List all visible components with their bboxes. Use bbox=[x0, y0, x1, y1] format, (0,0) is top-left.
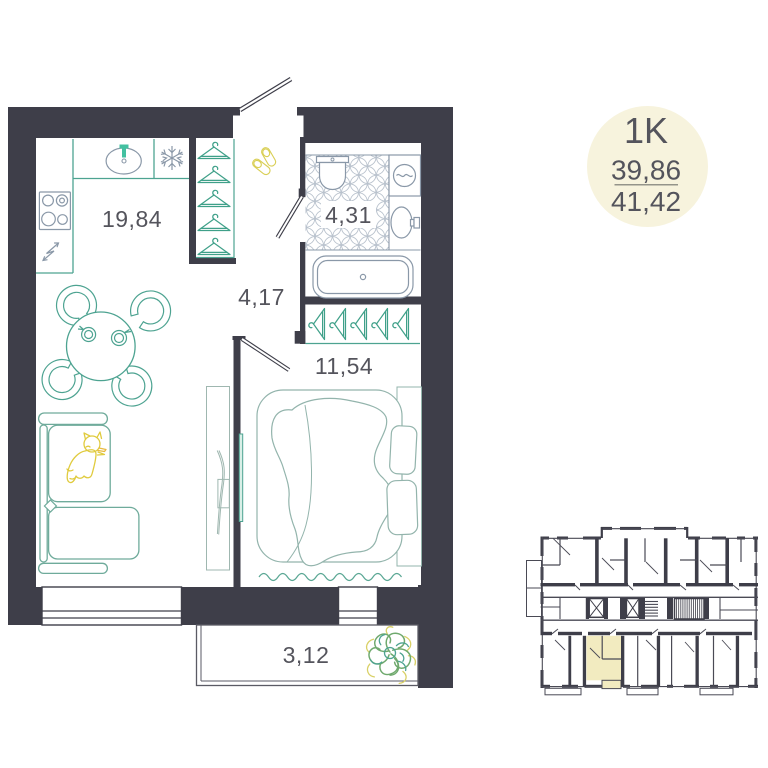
svg-text:3,12: 3,12 bbox=[283, 642, 330, 668]
svg-text:4,31: 4,31 bbox=[325, 202, 372, 228]
svg-text:19,84: 19,84 bbox=[102, 206, 162, 232]
svg-text:11,54: 11,54 bbox=[315, 353, 373, 379]
svg-text:39,86: 39,86 bbox=[611, 155, 681, 186]
svg-text:4,17: 4,17 bbox=[238, 284, 285, 310]
svg-text:41,42: 41,42 bbox=[611, 186, 681, 217]
svg-text:1K: 1K bbox=[624, 110, 668, 151]
